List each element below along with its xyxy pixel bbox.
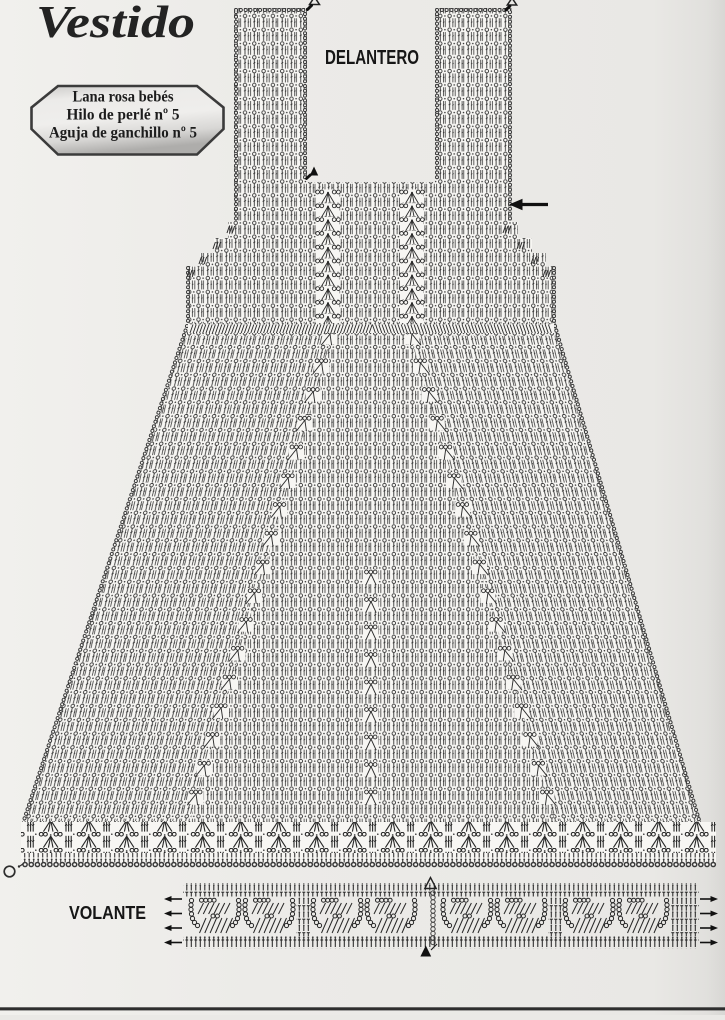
svg-text:VOLANTE: VOLANTE xyxy=(69,903,146,923)
svg-text:Aguja de ganchillo nº 5: Aguja de ganchillo nº 5 xyxy=(49,125,197,142)
svg-text:DELANTERO: DELANTERO xyxy=(325,47,419,69)
svg-text:Vestido: Vestido xyxy=(36,0,195,47)
svg-text:Lana rosa bebés: Lana rosa bebés xyxy=(73,89,174,106)
svg-text:Hilo de perlé nº 5: Hilo de perlé nº 5 xyxy=(67,107,180,124)
